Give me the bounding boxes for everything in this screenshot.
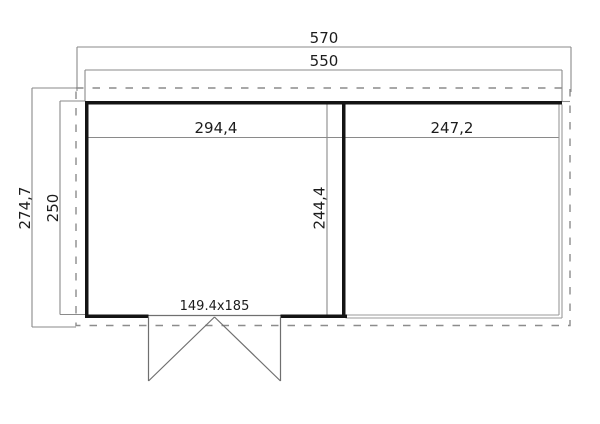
floor-plan-canvas: 570 550 294,4 247,2 274,7 250 244,4 149.… bbox=[0, 0, 600, 424]
dim-label-left-room-width: 294,4 bbox=[195, 119, 238, 137]
wall-top bbox=[85, 101, 562, 105]
wall-left bbox=[85, 101, 89, 318]
wall-bottom-left-of-door bbox=[85, 315, 149, 319]
dim-label-wall-width: 550 bbox=[310, 52, 339, 70]
dim-label-room-depth: 244,4 bbox=[311, 187, 329, 230]
dimension-lines-group bbox=[32, 47, 571, 327]
dim-label-door-size: 149.4x185 bbox=[180, 299, 250, 314]
dim-label-right-room-width: 247,2 bbox=[431, 119, 474, 137]
dim-label-wall-depth: 250 bbox=[44, 194, 62, 223]
floor-plan-drawing: 570 550 294,4 247,2 274,7 250 244,4 149.… bbox=[0, 0, 600, 424]
door-right-swing bbox=[215, 317, 281, 381]
wall-bottom-right-of-door bbox=[281, 315, 348, 319]
dim-label-overall-depth: 274,7 bbox=[16, 187, 34, 230]
door-left-swing bbox=[149, 317, 215, 381]
wall-middle-partition bbox=[342, 101, 346, 318]
dim-label-overall-width: 570 bbox=[310, 29, 339, 47]
